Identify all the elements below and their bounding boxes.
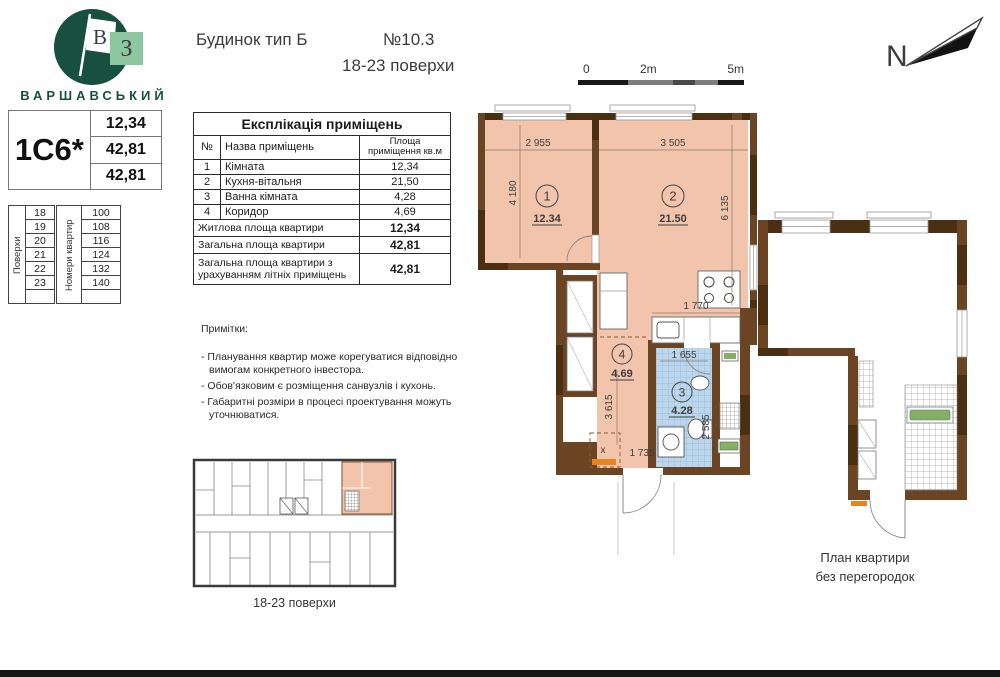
- table-row: 2 Кухня-вітальня 21,50: [194, 174, 451, 189]
- kitchen-counter: [652, 317, 740, 343]
- svg-text:1: 1: [543, 189, 550, 204]
- dim-room1-width: 2 955: [525, 138, 550, 149]
- floors-table-label: Поверхи: [9, 206, 26, 304]
- summary-row: Житлова площа квартири 12,34: [194, 219, 451, 236]
- highlighted-apartment: [342, 462, 392, 514]
- developer-logo: В З: [30, 4, 160, 90]
- scale-bar-segments: [578, 80, 744, 85]
- dim-bath-width: 1 655: [671, 350, 696, 361]
- tiled-zone: [859, 361, 873, 407]
- svg-text:2: 2: [669, 189, 676, 204]
- card-living-area: 12,34: [91, 111, 161, 136]
- right-plan-caption-line1: План квартири: [775, 549, 955, 568]
- floor-number: 22: [26, 262, 55, 276]
- apartment-number: 108: [82, 220, 121, 234]
- dim-room1-height: 4 180: [508, 180, 519, 205]
- summary-row: Загальна площа квартири з урахуванням лі…: [194, 253, 451, 284]
- boiler-icon: [724, 353, 736, 359]
- no-partitions-plan: [755, 195, 970, 550]
- window: [503, 113, 566, 120]
- fixture: [910, 410, 950, 420]
- floors-range: 18-23 поверхи: [342, 56, 454, 76]
- mini-plan-caption: 18-23 поверхи: [192, 596, 397, 610]
- svg-text:12.34: 12.34: [533, 213, 561, 225]
- table-row: 3 Ванна кімната 4,28: [194, 189, 451, 204]
- dim-room2-height: 6 135: [720, 195, 731, 220]
- room-name: Коридор: [221, 204, 360, 219]
- bath-sink: [691, 376, 709, 390]
- entry-mat: [592, 459, 616, 465]
- room-name: Ванна кімната: [221, 189, 360, 204]
- apartment-number: 140: [82, 276, 121, 290]
- room-area: 12,34: [360, 159, 451, 174]
- room-no: 4: [194, 204, 221, 219]
- window: [870, 220, 928, 233]
- dim-room2-width: 3 505: [660, 138, 685, 149]
- floor-number-empty: [26, 290, 55, 304]
- summary-value: 42,81: [360, 253, 451, 284]
- apartment-numbers-table: Номери квартир 100 108 116 124 132 140: [56, 205, 121, 304]
- scale-two: 2m: [640, 62, 657, 76]
- building-type: Будинок тип Б: [196, 30, 308, 50]
- explication-table: Експлікація приміщень № Назва приміщень …: [193, 112, 451, 285]
- scale-five: 5m: [727, 62, 744, 76]
- right-plan-caption: План квартири без перегородок: [775, 549, 955, 587]
- entrance-door: [870, 490, 905, 538]
- card-total-area-summer: 42,81: [91, 163, 161, 189]
- fridge: [600, 273, 627, 329]
- apartment-code-card: 1С6* 12,34 42,81 42,81: [8, 110, 162, 190]
- col-name: Назва приміщень: [221, 136, 360, 160]
- table-row: 4 Коридор 4,69: [194, 204, 451, 219]
- room-name: Кімната: [221, 159, 360, 174]
- logo-letter-v: В: [93, 25, 107, 49]
- dim-entry-width: 1 735: [629, 448, 654, 459]
- note-item: - Обов'язковим є розміщення санвузлів і …: [201, 380, 469, 394]
- floors-table: Поверхи 18 19 20 21 22 23: [8, 205, 55, 304]
- room-area: 21,50: [360, 174, 451, 189]
- floor-number: 19: [26, 220, 55, 234]
- entry-mat: [851, 501, 867, 506]
- plan-number: №10.3: [383, 30, 434, 50]
- window: [616, 113, 692, 120]
- wardrobe: [563, 275, 597, 397]
- balcony-door: [957, 310, 967, 357]
- summary-label: Загальна площа квартири: [194, 236, 360, 253]
- apartment-number: 124: [82, 248, 121, 262]
- floor-number: 20: [26, 234, 55, 248]
- scale-zero: 0: [583, 62, 590, 76]
- svg-text:3: 3: [679, 386, 686, 400]
- svg-text:4.69: 4.69: [611, 368, 632, 380]
- right-plan-caption-line2: без перегородок: [775, 568, 955, 587]
- dim-hall-height: 3 615: [604, 394, 615, 419]
- apartment-number-empty: [82, 290, 121, 304]
- floor-number: 18: [26, 206, 55, 220]
- north-arrow: N: [878, 6, 993, 72]
- card-total-area: 42,81: [91, 136, 161, 162]
- logo-letter-z: З: [120, 36, 132, 62]
- floor-plate-overview: [192, 458, 397, 590]
- summary-label: Загальна площа квартири з урахуванням лі…: [194, 253, 360, 284]
- summary-value: 42,81: [360, 236, 451, 253]
- main-apartment-plan: 2 955 3 505 4 180 6 135 1 770 1 655 3 61…: [470, 95, 770, 575]
- dim-bath-height: 2 585: [701, 414, 712, 439]
- note-item: - Планування квартир може корегуватися в…: [201, 351, 469, 378]
- floor-number: 23: [26, 276, 55, 290]
- notes-block: Примітки: - Планування квартир може коре…: [201, 323, 469, 425]
- note-item: - Габаритні розміри в процесі проектуван…: [201, 396, 469, 423]
- railing: [495, 105, 570, 111]
- shaft: [720, 403, 740, 429]
- scale-bar: 0 2m 5m: [578, 62, 744, 90]
- svg-text:21.50: 21.50: [659, 213, 687, 225]
- summary-row: Загальна площа квартири 42,81: [194, 236, 451, 253]
- railing: [610, 105, 695, 111]
- room-area: 4,28: [360, 189, 451, 204]
- summary-label: Житлова площа квартири: [194, 219, 360, 236]
- entry-mark: х: [601, 445, 606, 456]
- brand-name: ВАРШАВСЬКИЙ: [10, 88, 178, 103]
- room-no: 3: [194, 189, 221, 204]
- room-no: 1: [194, 159, 221, 174]
- window: [782, 220, 830, 233]
- entrance-door: [623, 468, 663, 513]
- apartment-code: 1С6*: [9, 111, 91, 189]
- explication-title: Експлікація приміщень: [194, 113, 451, 136]
- room-area: 4,69: [360, 204, 451, 219]
- floor-plan-sheet: В З ВАРШАВСЬКИЙ Будинок тип Б №10.3 18-2…: [0, 0, 1000, 677]
- summary-value: 12,34: [360, 219, 451, 236]
- col-area: Площа приміщення кв.м: [360, 136, 451, 160]
- notes-title: Примітки:: [201, 323, 469, 337]
- apartment-numbers-label: Номери квартир: [57, 206, 82, 304]
- svg-text:4.28: 4.28: [671, 405, 692, 417]
- washing-machine: [658, 427, 684, 457]
- col-no: №: [194, 136, 221, 160]
- room-no: 2: [194, 174, 221, 189]
- svg-text:4: 4: [619, 348, 626, 362]
- table-row: 1 Кімната 12,34: [194, 159, 451, 174]
- north-label: N: [886, 40, 908, 72]
- dim-kitchen: 1 770: [683, 301, 708, 312]
- apartment-number: 116: [82, 234, 121, 248]
- tiled-zone: [905, 385, 957, 490]
- photo-bottom-strip: [0, 670, 1000, 677]
- room-name: Кухня-вітальня: [221, 174, 360, 189]
- apartment-number: 100: [82, 206, 121, 220]
- floor-number: 21: [26, 248, 55, 262]
- apartment-number: 132: [82, 262, 121, 276]
